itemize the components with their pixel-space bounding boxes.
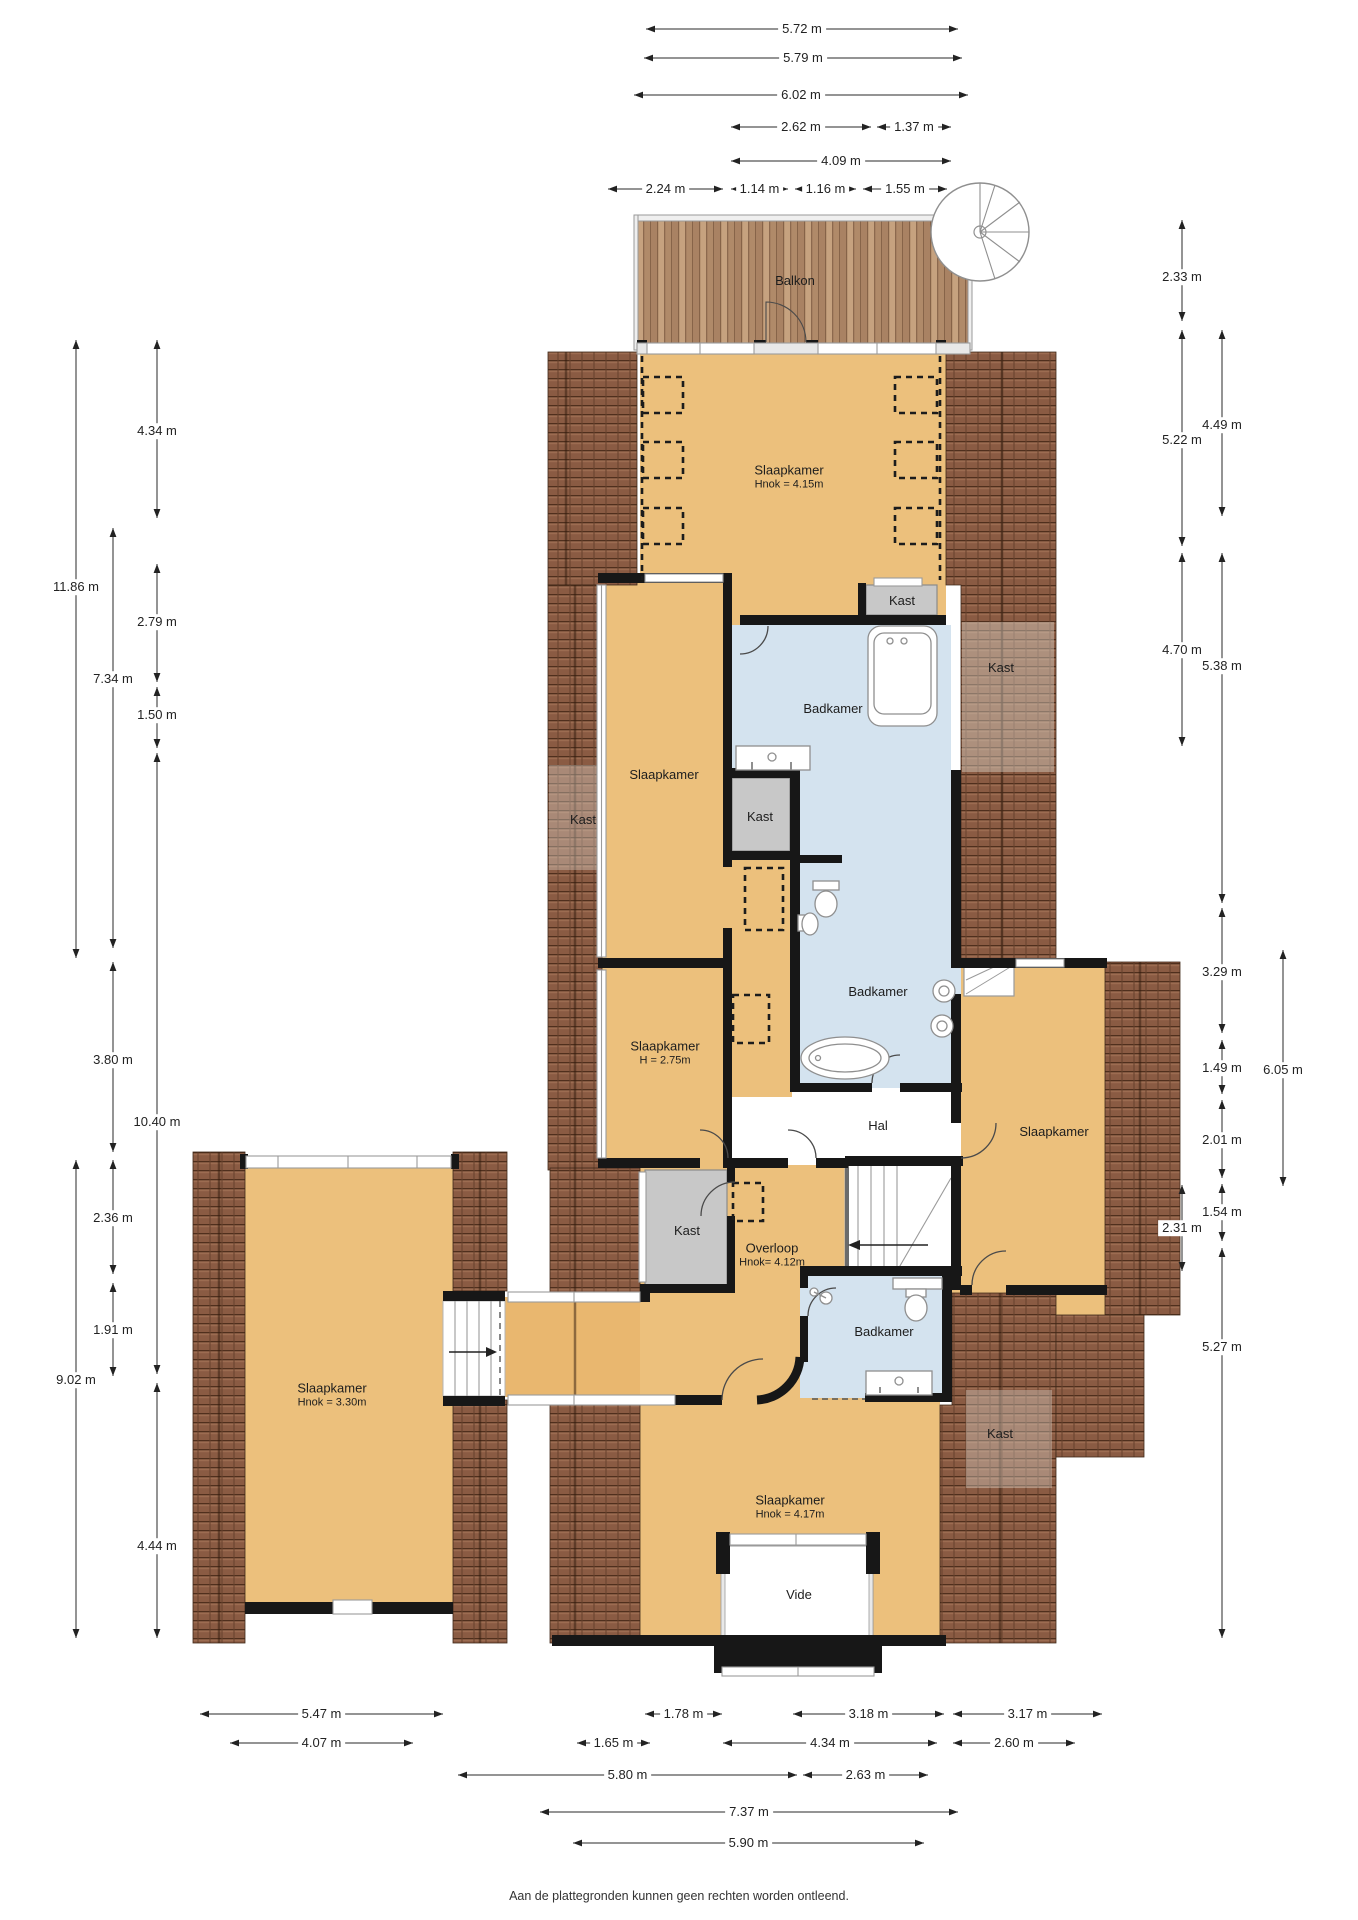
room-label-hal: Hal [868,1118,888,1134]
room-label-overloop: OverloopHnok= 4.12m [739,1241,805,1270]
room-name: Slaapkamer [629,767,698,783]
dimension-label: 5.79 m [779,50,827,66]
dimension-label: 2.33 m [1158,269,1206,285]
dimension-label: 4.09 m [817,153,865,169]
dimension-label: 2.79 m [133,614,181,630]
dimension-label: 5.22 m [1158,432,1206,448]
room-height-note: Hnok = 3.30m [297,1396,366,1409]
dimension-line [73,1160,80,1638]
dimension-label: 1.65 m [590,1735,638,1751]
room-name: Kast [988,660,1014,676]
room-label-kast: Kast [988,660,1014,676]
room-name: Kast [674,1223,700,1239]
dimension-label: 3.18 m [845,1706,893,1722]
dimension-label: 1.50 m [133,707,181,723]
room-name: Hal [868,1118,888,1134]
dimension-label: 1.37 m [890,119,938,135]
room-name: Badkamer [803,701,862,717]
dimension-line [1219,553,1226,903]
dimension-label: 2.36 m [89,1210,137,1226]
room-name: Badkamer [848,984,907,1000]
room-label-kast: Kast [889,593,915,609]
room-name: Slaapkamer [1019,1124,1088,1140]
room-name: Overloop [739,1241,805,1257]
dimension-label: 5.80 m [604,1767,652,1783]
dimension-label: 4.44 m [133,1538,181,1554]
room-name: Kast [570,812,596,828]
dimension-label: 1.55 m [881,181,929,197]
dimension-label: 3.29 m [1198,964,1246,980]
room-height-note: Hnok = 4.15m [754,478,823,491]
dimension-line [73,340,80,958]
room-label-slaapkamer: SlaapkamerH = 2.75m [630,1039,699,1068]
room-label-slaapkamer: Slaapkamer [1019,1124,1088,1140]
dimension-label: 5.47 m [298,1706,346,1722]
room-label-badkamer: Badkamer [854,1324,913,1340]
dimension-label: 4.34 m [133,423,181,439]
room-label-slaapkamer: SlaapkamerHnok = 4.17m [755,1493,824,1522]
dimension-label: 10.40 m [130,1114,185,1130]
dimension-label: 4.49 m [1198,417,1246,433]
room-label-kast: Kast [987,1426,1013,1442]
dimension-lines-layer [0,0,1358,1920]
dimension-line [154,1383,161,1638]
dimension-label: 2.60 m [990,1735,1038,1751]
dimension-line [154,753,161,1374]
dimension-label: 1.54 m [1198,1204,1246,1220]
dimension-label: 2.62 m [777,119,825,135]
dimension-label: 6.02 m [777,87,825,103]
room-name: Slaapkamer [755,1493,824,1509]
room-name: Slaapkamer [297,1381,366,1397]
dimension-label: 5.38 m [1198,658,1246,674]
room-name: Slaapkamer [630,1039,699,1055]
room-height-note: H = 2.75m [630,1054,699,1067]
room-label-kast: Kast [747,809,773,825]
dimension-line [1219,1248,1226,1638]
room-name: Balkon [775,273,815,289]
room-label-kast: Kast [674,1223,700,1239]
dimension-label: 1.16 m [802,181,850,197]
dimension-label: 4.70 m [1158,642,1206,658]
dimension-label: 7.34 m [89,671,137,687]
dimension-label: 3.17 m [1004,1706,1052,1722]
room-name: Vide [786,1587,812,1603]
room-height-note: Hnok = 4.17m [755,1508,824,1521]
floorplan-page: BalkonSlaapkamerHnok = 4.15mKastKastBadk… [0,0,1358,1920]
dimension-label: 1.14 m [736,181,784,197]
room-name: Kast [889,593,915,609]
dimension-label: 5.27 m [1198,1339,1246,1355]
dimension-label: 1.49 m [1198,1060,1246,1076]
dimension-label: 3.80 m [89,1052,137,1068]
dimension-label: 5.90 m [725,1835,773,1851]
dimension-label: 4.07 m [298,1735,346,1751]
dimension-line [110,528,117,948]
dimension-label: 11.86 m [49,579,103,595]
dimension-label: 2.63 m [842,1767,890,1783]
room-label-vide: Vide [786,1587,812,1603]
room-label-slaapkamer: Slaapkamer [629,767,698,783]
room-label-slaapkamer: SlaapkamerHnok = 4.15m [754,463,823,492]
dimension-label: 2.01 m [1198,1132,1246,1148]
room-name: Badkamer [854,1324,913,1340]
room-label-badkamer: Badkamer [803,701,862,717]
room-name: Kast [747,809,773,825]
dimension-label: 2.24 m [642,181,690,197]
dimension-label: 1.91 m [89,1322,137,1338]
dimension-label: 9.02 m [52,1372,100,1388]
dimension-label: 4.34 m [806,1735,854,1751]
room-label-kast: Kast [570,812,596,828]
room-label-badkamer: Badkamer [848,984,907,1000]
room-label-slaapkamer: SlaapkamerHnok = 3.30m [297,1381,366,1410]
dimension-label: 7.37 m [725,1804,773,1820]
room-name: Kast [987,1426,1013,1442]
dimension-label: 5.72 m [778,21,826,37]
dimension-label: 1.78 m [660,1706,708,1722]
footer-disclaimer: Aan de plattegronden kunnen geen rechten… [509,1889,849,1903]
room-name: Slaapkamer [754,463,823,479]
room-label-balkon: Balkon [775,273,815,289]
room-height-note: Hnok= 4.12m [739,1256,805,1269]
dimension-label: 2.31 m [1158,1220,1206,1236]
dimension-label: 6.05 m [1259,1062,1307,1078]
